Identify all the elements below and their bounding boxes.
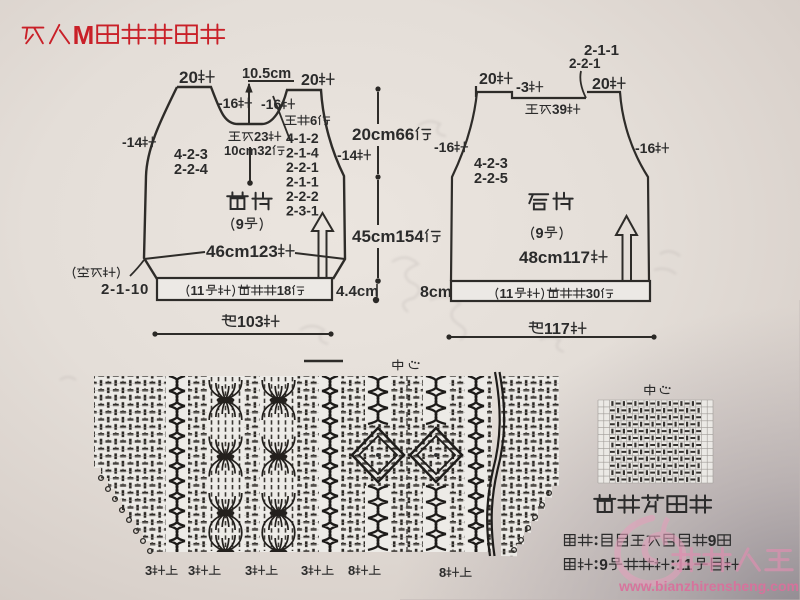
svg-text:46cm123: 46cm123 [206, 242, 278, 261]
svg-text:-16: -16 [635, 140, 655, 156]
svg-text:10cm32: 10cm32 [224, 143, 272, 158]
svg-text:-16: -16 [261, 96, 281, 112]
svg-text:23: 23 [254, 129, 268, 144]
svg-text:-14: -14 [337, 147, 357, 163]
svg-text:8cm: 8cm [420, 284, 452, 301]
svg-text:6: 6 [310, 113, 317, 128]
svg-text:8: 8 [439, 565, 446, 580]
svg-text:2-2-1: 2-2-1 [569, 56, 601, 71]
svg-text:3: 3 [301, 563, 308, 578]
svg-text:48cm117: 48cm117 [519, 248, 590, 267]
svg-text:10.5cm: 10.5cm [242, 66, 291, 82]
svg-text:-16: -16 [434, 139, 454, 155]
svg-text:-14: -14 [122, 134, 142, 150]
svg-text:3: 3 [188, 563, 195, 578]
svg-text:2-2-4: 2-2-4 [174, 162, 208, 178]
svg-text:3: 3 [245, 563, 252, 578]
svg-text:20: 20 [592, 76, 610, 93]
svg-text:-16: -16 [218, 95, 238, 111]
svg-text:M: M [73, 20, 95, 50]
svg-text:8: 8 [348, 563, 355, 578]
svg-text:39: 39 [552, 102, 567, 117]
svg-text:11: 11 [191, 283, 205, 298]
svg-text:117: 117 [544, 321, 570, 338]
svg-text:2-3-1: 2-3-1 [286, 203, 319, 219]
svg-text:103: 103 [237, 314, 264, 331]
svg-text:45cm154: 45cm154 [352, 227, 424, 246]
svg-text:3: 3 [145, 563, 152, 578]
svg-text:2-2-5: 2-2-5 [474, 171, 508, 187]
svg-text:4-2-3: 4-2-3 [474, 156, 508, 172]
svg-text:30: 30 [586, 286, 600, 301]
svg-text:11: 11 [500, 286, 514, 301]
svg-text:9: 9 [236, 217, 244, 233]
svg-text:www.bianzhirensheng.com: www.bianzhirensheng.com [618, 578, 799, 594]
svg-text:20cm66: 20cm66 [352, 125, 414, 144]
svg-text:20: 20 [479, 71, 497, 88]
svg-text:-3: -3 [516, 80, 529, 96]
svg-text:20: 20 [301, 72, 319, 89]
svg-text:9: 9 [599, 557, 608, 574]
svg-text:20: 20 [179, 68, 198, 87]
svg-text:18: 18 [277, 283, 291, 298]
svg-text:4.4cm: 4.4cm [336, 283, 379, 300]
svg-text:9: 9 [536, 226, 544, 242]
svg-text:4-2-3: 4-2-3 [174, 147, 208, 163]
svg-text:2-1-10: 2-1-10 [101, 281, 149, 298]
